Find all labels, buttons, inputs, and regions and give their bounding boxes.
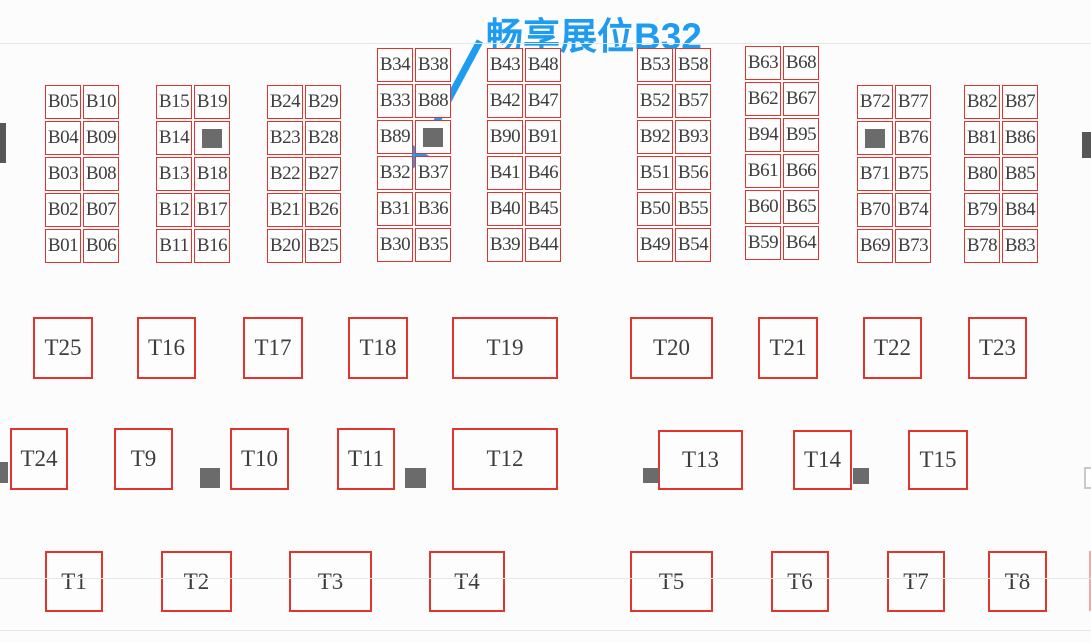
booth-B74[interactable]: B74 bbox=[895, 193, 931, 227]
booth-B57[interactable]: B57 bbox=[675, 84, 711, 118]
booth-B75[interactable]: B75 bbox=[895, 157, 931, 191]
booth-B64[interactable]: B64 bbox=[783, 226, 819, 260]
booth-B68[interactable]: B68 bbox=[783, 46, 819, 80]
scan-artifact-line bbox=[0, 43, 1091, 44]
booth-B76[interactable]: B76 bbox=[895, 121, 931, 155]
booth-T19[interactable]: T19 bbox=[452, 317, 558, 379]
booth-B31[interactable]: B31 bbox=[377, 192, 413, 226]
booth-B30[interactable]: B30 bbox=[377, 228, 413, 262]
booth-B66[interactable]: B66 bbox=[783, 154, 819, 188]
booth-B12[interactable]: B12 bbox=[156, 193, 192, 227]
booth-B48[interactable]: B48 bbox=[525, 48, 561, 82]
booth-T5[interactable]: T5 bbox=[630, 551, 713, 612]
booth-T11[interactable]: T11 bbox=[337, 428, 395, 490]
booth-B93[interactable]: B93 bbox=[675, 120, 711, 154]
pillar-cell bbox=[415, 120, 451, 154]
booth-T2[interactable]: T2 bbox=[161, 551, 232, 612]
booth-T21[interactable]: T21 bbox=[758, 317, 818, 379]
gray-block-icon bbox=[202, 129, 222, 148]
booth-B13[interactable]: B13 bbox=[156, 157, 192, 191]
booth-B27[interactable]: B27 bbox=[305, 157, 341, 191]
booth-B42[interactable]: B42 bbox=[487, 84, 523, 118]
booth-B33[interactable]: B33 bbox=[377, 84, 413, 118]
booth-B10[interactable]: B10 bbox=[83, 85, 119, 119]
booth-B19[interactable]: B19 bbox=[194, 85, 230, 119]
booth-B40[interactable]: B40 bbox=[487, 192, 523, 226]
booth-B51[interactable]: B51 bbox=[637, 156, 673, 190]
booth-B24[interactable]: B24 bbox=[267, 85, 303, 119]
booth-B20[interactable]: B20 bbox=[267, 229, 303, 263]
booth-T14[interactable]: T14 bbox=[793, 430, 852, 490]
booth-T9[interactable]: T9 bbox=[114, 428, 173, 490]
booth-B23[interactable]: B23 bbox=[267, 121, 303, 155]
booth-B89[interactable]: B89 bbox=[377, 120, 413, 154]
booth-B16[interactable]: B16 bbox=[194, 229, 230, 263]
booth-T17[interactable]: T17 bbox=[243, 317, 303, 379]
booth-B91[interactable]: B91 bbox=[525, 120, 561, 154]
booth-T25[interactable]: T25 bbox=[33, 317, 93, 379]
booth-B07[interactable]: B07 bbox=[83, 193, 119, 227]
booth-B72[interactable]: B72 bbox=[857, 85, 893, 119]
scan-artifact-line bbox=[0, 578, 1091, 579]
booth-T6[interactable]: T6 bbox=[771, 551, 829, 612]
pillar-cell bbox=[194, 121, 230, 155]
booth-B47[interactable]: B47 bbox=[525, 84, 561, 118]
booth-B67[interactable]: B67 bbox=[783, 82, 819, 116]
booth-B85[interactable]: B85 bbox=[1002, 157, 1038, 191]
booth-B82[interactable]: B82 bbox=[964, 85, 1000, 119]
booth-T7[interactable]: T7 bbox=[887, 551, 945, 612]
booth-T23[interactable]: T23 bbox=[968, 317, 1027, 379]
booth-B35[interactable]: B35 bbox=[415, 228, 451, 262]
booth-B14[interactable]: B14 bbox=[156, 121, 192, 155]
booth-T10[interactable]: T10 bbox=[230, 428, 289, 490]
booth-B25[interactable]: B25 bbox=[305, 229, 341, 263]
booth-block-7: B63B68B62B67B94B95B61B66B60B65B59B64 bbox=[745, 46, 819, 260]
booth-B34[interactable]: B34 bbox=[377, 48, 413, 82]
booth-B37[interactable]: B37 bbox=[415, 156, 451, 190]
booth-B59[interactable]: B59 bbox=[745, 226, 781, 260]
booth-block-2: B15B19B14B13B18B12B17B11B16 bbox=[156, 85, 230, 263]
booth-B36[interactable]: B36 bbox=[415, 192, 451, 226]
booth-B01[interactable]: B01 bbox=[45, 229, 81, 263]
booth-B56[interactable]: B56 bbox=[675, 156, 711, 190]
booth-T16[interactable]: T16 bbox=[137, 317, 196, 379]
booth-T15[interactable]: T15 bbox=[908, 430, 968, 490]
booth-T13[interactable]: T13 bbox=[658, 430, 743, 490]
booth-T18[interactable]: T18 bbox=[348, 317, 408, 379]
pillar-marker bbox=[0, 462, 8, 483]
booth-B29[interactable]: B29 bbox=[305, 85, 341, 119]
pillar-marker bbox=[643, 468, 659, 483]
booth-B43[interactable]: B43 bbox=[487, 48, 523, 82]
booth-T24[interactable]: T24 bbox=[10, 428, 68, 490]
booth-block-4: B34B38B33B88B89B32B37B31B36B30B35 bbox=[377, 48, 451, 262]
booth-B02[interactable]: B02 bbox=[45, 193, 81, 227]
booth-B45[interactable]: B45 bbox=[525, 192, 561, 226]
booth-B22[interactable]: B22 bbox=[267, 157, 303, 191]
booth-T1[interactable]: T1 bbox=[45, 551, 103, 612]
booth-B65[interactable]: B65 bbox=[783, 190, 819, 224]
booth-B60[interactable]: B60 bbox=[745, 190, 781, 224]
booth-B78[interactable]: B78 bbox=[964, 229, 1000, 263]
edge-pillar-marker bbox=[1082, 132, 1091, 158]
booth-B18[interactable]: B18 bbox=[194, 157, 230, 191]
booth-B94[interactable]: B94 bbox=[745, 118, 781, 152]
gray-block-icon bbox=[865, 129, 885, 148]
booth-T12[interactable]: T12 bbox=[452, 428, 558, 490]
booth-T4[interactable]: T4 bbox=[429, 551, 505, 612]
pillar-marker bbox=[200, 468, 220, 488]
booth-B69[interactable]: B69 bbox=[857, 229, 893, 263]
pillar-marker bbox=[853, 468, 869, 484]
booth-B26[interactable]: B26 bbox=[305, 193, 341, 227]
booth-B28[interactable]: B28 bbox=[305, 121, 341, 155]
booth-block-9: B82B87B81B86B80B85B79B84B78B83 bbox=[964, 85, 1038, 263]
booth-B62[interactable]: B62 bbox=[745, 82, 781, 116]
booth-B79[interactable]: B79 bbox=[964, 193, 1000, 227]
booth-block-8: B72B77B76B71B75B70B74B69B73 bbox=[857, 85, 931, 263]
booth-B71[interactable]: B71 bbox=[857, 157, 893, 191]
booth-B88[interactable]: B88 bbox=[415, 84, 451, 118]
booth-B05[interactable]: B05 bbox=[45, 85, 81, 119]
booth-B77[interactable]: B77 bbox=[895, 85, 931, 119]
booth-B06[interactable]: B06 bbox=[83, 229, 119, 263]
pillar-cell bbox=[857, 121, 893, 155]
booth-B50[interactable]: B50 bbox=[637, 192, 673, 226]
booth-B86[interactable]: B86 bbox=[1002, 121, 1038, 155]
booth-B73[interactable]: B73 bbox=[895, 229, 931, 263]
gray-block-icon bbox=[423, 128, 443, 147]
booth-B81[interactable]: B81 bbox=[964, 121, 1000, 155]
booth-T8[interactable]: T8 bbox=[988, 551, 1047, 612]
booth-T3[interactable]: T3 bbox=[289, 551, 372, 612]
booth-B55[interactable]: B55 bbox=[675, 192, 711, 226]
booth-B52[interactable]: B52 bbox=[637, 84, 673, 118]
booth-B83[interactable]: B83 bbox=[1002, 229, 1038, 263]
pillar-marker bbox=[405, 468, 426, 488]
booth-B58[interactable]: B58 bbox=[675, 48, 711, 82]
booth-B17[interactable]: B17 bbox=[194, 193, 230, 227]
booth-block-5: B43B48B42B47B90B91B41B46B40B45B39B44 bbox=[487, 48, 561, 262]
booth-B38[interactable]: B38 bbox=[415, 48, 451, 82]
booth-B46[interactable]: B46 bbox=[525, 156, 561, 190]
edge-pillar-marker bbox=[0, 123, 6, 163]
booth-B09[interactable]: B09 bbox=[83, 121, 119, 155]
booth-block-6: B53B58B52B57B92B93B51B56B50B55B49B54 bbox=[637, 48, 711, 262]
booth-T20[interactable]: T20 bbox=[630, 317, 713, 379]
booth-B32[interactable]: B32 bbox=[377, 156, 413, 190]
booth-B15[interactable]: B15 bbox=[156, 85, 192, 119]
booth-B92[interactable]: B92 bbox=[637, 120, 673, 154]
booth-B04[interactable]: B04 bbox=[45, 121, 81, 155]
scan-artifact-line bbox=[0, 630, 1091, 631]
booth-B21[interactable]: B21 bbox=[267, 193, 303, 227]
booth-B39[interactable]: B39 bbox=[487, 228, 523, 262]
booth-B03[interactable]: B03 bbox=[45, 157, 81, 191]
booth-T22[interactable]: T22 bbox=[863, 317, 922, 379]
booth-B80[interactable]: B80 bbox=[964, 157, 1000, 191]
booth-B11[interactable]: B11 bbox=[156, 229, 192, 263]
booth-block-1: B05B10B04B09B03B08B02B07B01B06 bbox=[45, 85, 119, 263]
booth-B61[interactable]: B61 bbox=[745, 154, 781, 188]
booth-B95[interactable]: B95 bbox=[783, 118, 819, 152]
booth-B08[interactable]: B08 bbox=[83, 157, 119, 191]
booth-B41[interactable]: B41 bbox=[487, 156, 523, 190]
booth-B54[interactable]: B54 bbox=[675, 228, 711, 262]
booth-B70[interactable]: B70 bbox=[857, 193, 893, 227]
booth-block-3: B24B29B23B28B22B27B21B26B20B25 bbox=[267, 85, 341, 263]
booth-B90[interactable]: B90 bbox=[487, 120, 523, 154]
booth-B49[interactable]: B49 bbox=[637, 228, 673, 262]
booth-B87[interactable]: B87 bbox=[1002, 85, 1038, 119]
booth-B44[interactable]: B44 bbox=[525, 228, 561, 262]
booth-B63[interactable]: B63 bbox=[745, 46, 781, 80]
booth-B53[interactable]: B53 bbox=[637, 48, 673, 82]
booth-B84[interactable]: B84 bbox=[1002, 193, 1038, 227]
exhibition-floorplan: 畅享展位B32 B05B10B04B09B03B08B02B07B01B06B1… bbox=[0, 0, 1091, 642]
edge-partial-booth bbox=[1084, 467, 1091, 489]
